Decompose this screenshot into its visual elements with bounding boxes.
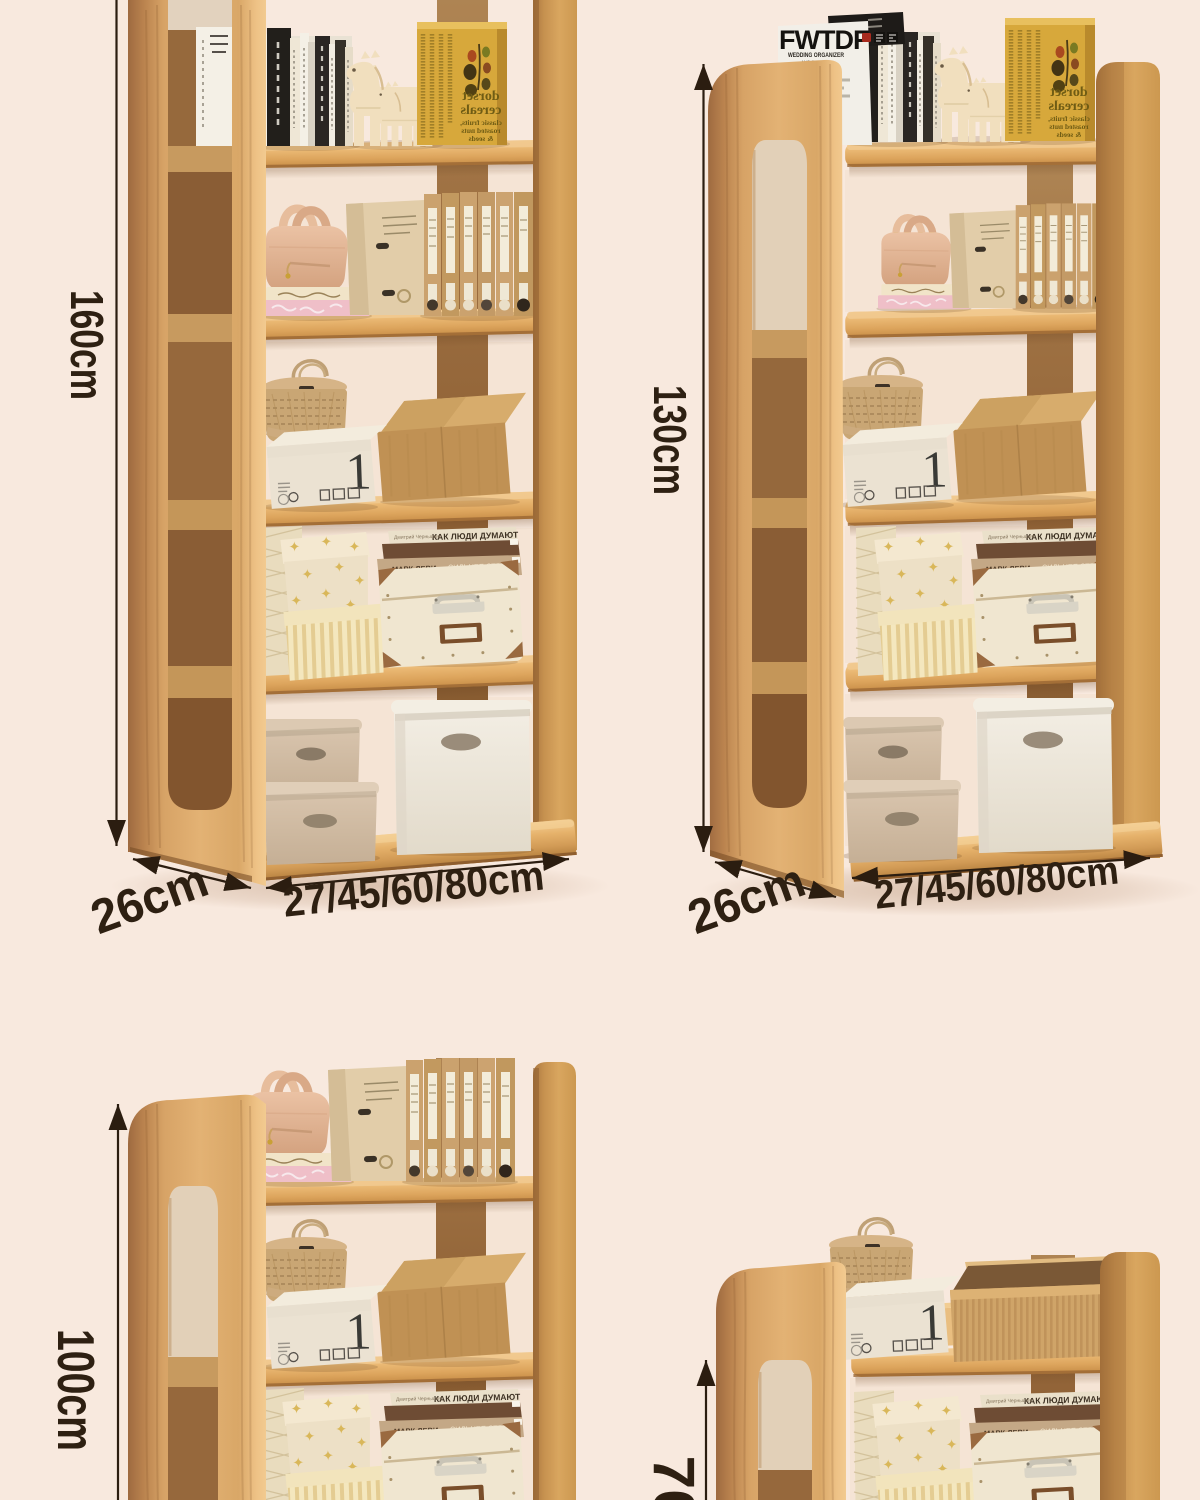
svg-text:WEDDING ORGANIZER: WEDDING ORGANIZER [788,52,844,59]
svg-text:100cm: 100cm [46,1329,104,1451]
svg-text:70cm: 70cm [641,1456,706,1500]
svg-text:160cm: 160cm [61,290,113,400]
svg-text:FWTDF: FWTDF [779,25,869,55]
svg-text:130cm: 130cm [644,385,696,495]
